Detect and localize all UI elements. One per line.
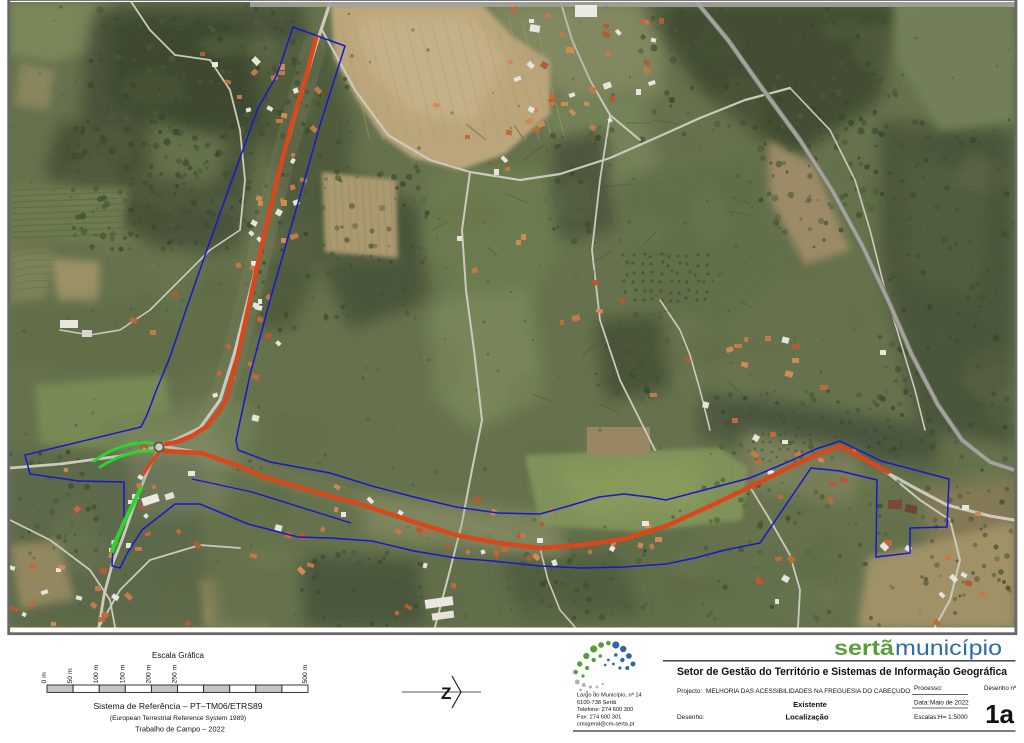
svg-text:250 m: 250 m	[172, 664, 179, 683]
svg-text:H= 1:5000: H= 1:5000	[938, 714, 968, 721]
svg-text:Sistema de Referência – PT: Sistema de Referência – PT–TM06/ETRS89	[93, 701, 262, 711]
svg-text:Setor de Gestão do Território: Setor de Gestão do Território e Sistemas…	[677, 666, 1008, 678]
svg-text:Projecto:: Projecto:	[677, 688, 702, 695]
svg-text:150 m: 150 m	[119, 664, 126, 683]
svg-text:Trabalho de Campo – 2022: Trabalho de Campo – 2022	[135, 725, 225, 734]
svg-text:sertã: sertã	[834, 637, 894, 660]
svg-text:Processo:: Processo:	[914, 685, 943, 692]
svg-text:Fax: 274 600 301: Fax: 274 600 301	[577, 714, 621, 720]
svg-text:município: município	[895, 637, 1002, 660]
svg-text:Localização: Localização	[785, 713, 828, 722]
svg-text:500 m: 500 m	[302, 664, 309, 683]
svg-text:100 m: 100 m	[93, 664, 100, 683]
svg-text:Data:: Data:	[914, 700, 929, 707]
svg-text:(European Terrestrial Refere: (European Terrestrial Reference System 1…	[110, 715, 246, 722]
svg-text:Escala Gráfica: Escala Gráfica	[152, 651, 205, 660]
svg-text:0 m: 0 m	[41, 672, 48, 684]
svg-text:cmsgeral@cm-serta.pt: cmsgeral@cm-serta.pt	[577, 722, 635, 728]
svg-text:Desenho nº: Desenho nº	[984, 685, 1017, 692]
svg-text:Existente: Existente	[793, 700, 827, 709]
svg-text:Z: Z	[441, 684, 451, 703]
svg-text:MELHORIA DAS ACESSIBILIDADES N: MELHORIA DAS ACESSIBILIDADES NA FREGUESI…	[706, 688, 910, 695]
svg-text:Escalas:: Escalas:	[914, 714, 938, 721]
svg-text:Maio de 2022: Maio de 2022	[930, 700, 969, 707]
svg-text:50 m: 50 m	[67, 668, 74, 683]
svg-text:Telefone: 274 600 300: Telefone: 274 600 300	[577, 707, 633, 713]
svg-text:Desenho:: Desenho:	[677, 714, 705, 721]
svg-text:6100-738 Sertã: 6100-738 Sertã	[577, 700, 617, 706]
svg-text:Largo do Município, nº 14: Largo do Município, nº 14	[577, 692, 642, 699]
svg-text:1a: 1a	[985, 699, 1014, 729]
svg-text:200 m: 200 m	[145, 664, 152, 683]
